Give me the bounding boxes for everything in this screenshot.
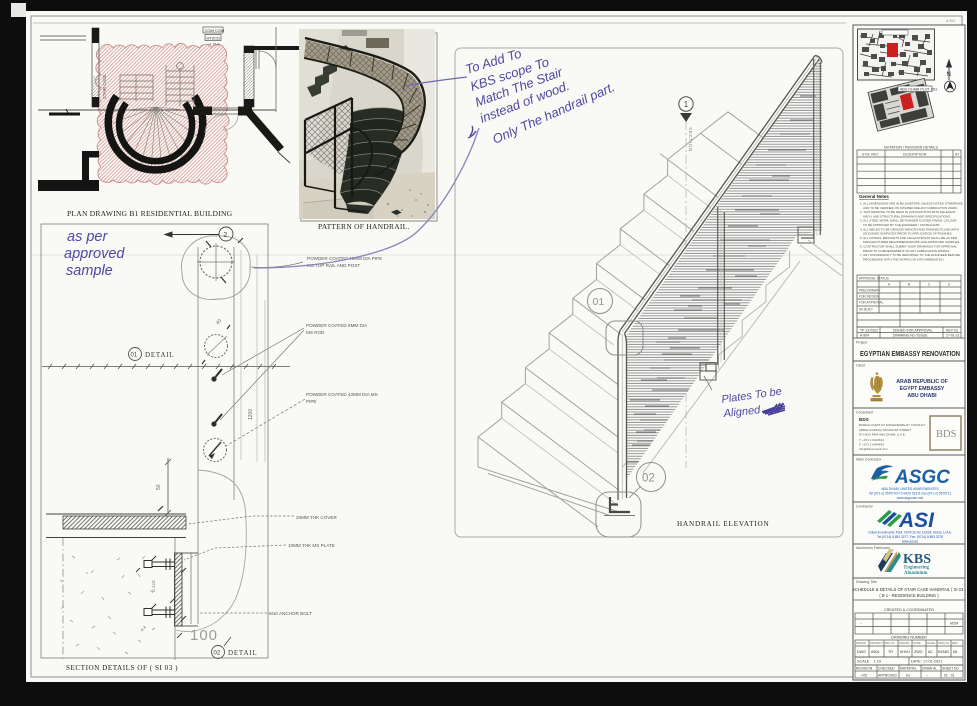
svg-text:Contractor: Contractor <box>856 505 874 509</box>
svg-text:REV: REV <box>952 641 958 645</box>
svg-text:--: -- <box>926 673 928 677</box>
svg-text:SHEET No: SHEET No <box>942 667 959 671</box>
svg-text:LEVEL: LEVEL <box>927 641 936 645</box>
svg-text:PROCEEDING WITH THE WORKS ON S: PROCEEDING WITH THE WORKS ON SITE IMMEDI… <box>863 257 945 261</box>
svg-text:HANDRAIL ELEVATION: HANDRAIL ELEVATION <box>677 520 769 528</box>
svg-text:BDS: BDS <box>859 417 869 422</box>
svg-text:DETAIL: DETAIL <box>145 351 175 359</box>
svg-text:ZWO: ZWO <box>914 650 923 654</box>
svg-text:A1: A1 <box>906 673 910 677</box>
svg-text:Client: Client <box>856 364 865 368</box>
svg-text:Main Contractor: Main Contractor <box>856 458 882 462</box>
svg-text:AC: AC <box>928 650 933 654</box>
svg-text:DETAIL: DETAIL <box>228 649 258 657</box>
svg-text:Engineering: Engineering <box>904 566 930 571</box>
svg-text:A-904: A-904 <box>946 19 955 23</box>
svg-text:A-904: A-904 <box>860 334 869 338</box>
svg-text:MATERIAL: MATERIAL <box>900 667 917 671</box>
svg-text:BY: BY <box>955 152 960 156</box>
svg-text:17-01-21: 17-01-21 <box>946 334 960 338</box>
svg-text:DWG: DWG <box>857 650 866 654</box>
svg-text:SCHEDULE & DETAILS OF STAIR CA: SCHEDULE & DETAILS OF STAIR CASE HANDRAI… <box>852 587 966 592</box>
svg-text:( B 1 - RESIDENCE BUILDING ): ( B 1 - RESIDENCE BUILDING ) <box>879 593 939 598</box>
svg-text:CREATED & COORDINATED: CREATED & COORDINATED <box>884 608 935 612</box>
svg-text:A904: A904 <box>871 650 879 654</box>
svg-text:ASGC: ASGC <box>894 467 950 488</box>
svg-text:CHECKED: CHECKED <box>878 667 895 671</box>
svg-text:STAIR CASE: STAIR CASE <box>102 74 107 99</box>
svg-text:100: 100 <box>190 627 218 644</box>
svg-text:--/05: --/05 <box>860 673 867 677</box>
svg-text:P.O BOX 4864 ABU DHABI, U.A.E.: P.O BOX 4864 ABU DHABI, U.A.E. <box>859 433 906 437</box>
svg-text:DISCIPL: DISCIPL <box>899 641 910 645</box>
svg-text:ABU DHABI, UNITED ARAB EMIRATE: ABU DHABI, UNITED ARAB EMIRATES <box>881 487 938 491</box>
svg-text:1200: 1200 <box>248 409 254 420</box>
svg-text:01: 01 <box>131 353 138 359</box>
svg-text:EGYPTIAN EMBASSY RENOVATION: EGYPTIAN EMBASSY RENOVATION <box>860 349 960 358</box>
svg-text:as per: as per <box>67 229 108 245</box>
svg-text:KHVU: KHVU <box>900 650 910 654</box>
svg-text:Consultant: Consultant <box>856 411 873 415</box>
svg-text:--: -- <box>860 621 862 625</box>
svg-text:1: 1 <box>684 100 689 109</box>
svg-text:SECTION DETAILS OF ( SI 03 ): SECTION DETAILS OF ( SI 03 ) <box>66 664 178 672</box>
svg-text:NOTATION / REVISION DETAILS: NOTATION / REVISION DETAILS <box>884 146 939 150</box>
svg-text:ASI: ASI <box>898 509 935 532</box>
svg-text:ABU DHABI PLOT C61: ABU DHABI PLOT C61 <box>900 87 937 91</box>
svg-text:SCALE 1:10: SCALE 1:10 <box>857 660 881 664</box>
svg-text:BDS: BDS <box>936 429 957 440</box>
svg-text:+4.15 m: +4.15 m <box>207 43 220 47</box>
svg-text:www.asi.ae: www.asi.ae <box>902 539 918 543</box>
svg-text:FOR REVIEW: FOR REVIEW <box>859 295 879 299</box>
svg-text:COM COM: COM COM <box>205 28 225 33</box>
svg-text:K934B: K934B <box>938 650 949 654</box>
svg-text:DATE: 17-01-2021: DATE: 17-01-2021 <box>911 660 942 664</box>
svg-text:20MM THK COVER: 20MM THK COVER <box>296 515 337 520</box>
svg-text:08: 08 <box>953 650 957 654</box>
svg-text:HTZCD: HTZCD <box>207 35 221 40</box>
svg-text:ORIGIN: ORIGIN <box>856 641 866 645</box>
svg-text:10MM THK MS PLATE: 10MM THK MS PLATE <box>288 543 335 548</box>
svg-text:F. +971 2 6444814: F. +971 2 6444814 <box>859 443 884 447</box>
svg-text:02: 02 <box>214 651 221 657</box>
svg-text:MS TOP RAIL AND POST: MS TOP RAIL AND POST <box>307 263 360 268</box>
svg-text:ARAB REPUBLIC OF: ARAB REPUBLIC OF <box>896 379 948 385</box>
svg-text:info@bdsconsult.com: info@bdsconsult.com <box>859 447 888 451</box>
svg-text:DESCRIPTION: DESCRIPTION <box>903 152 927 156</box>
svg-text:TP-13-0322: TP-13-0322 <box>860 328 878 332</box>
svg-text:MZM: MZM <box>950 622 958 626</box>
svg-text:02: 02 <box>642 473 655 485</box>
svg-text:DRAW AL: DRAW AL <box>922 667 937 671</box>
svg-text:ZONE: ZONE <box>913 641 921 645</box>
svg-text:2: 2 <box>223 232 227 239</box>
svg-text:ABDEL RAZZAQ SANHOURI STREET: ABDEL RAZZAQ SANHOURI STREET <box>859 428 911 432</box>
svg-text:DRAWING No / ISSUE: DRAWING No / ISSUE <box>893 334 928 338</box>
svg-text:POWDER COATED 42MM DIA MS: POWDER COATED 42MM DIA MS <box>306 392 378 397</box>
svg-text:APPROVAL STATUS: APPROVAL STATUS <box>859 277 889 281</box>
svg-text:REVISION: REVISION <box>856 667 873 671</box>
svg-text:APPROVED: APPROVED <box>878 673 897 677</box>
svg-text:T. +971 2 6444813: T. +971 2 6444813 <box>859 438 884 442</box>
svg-text:www.asgcuae.com: www.asgcuae.com <box>897 496 924 500</box>
svg-text:FOR APPROVAL: FOR APPROVAL <box>859 301 884 305</box>
svg-text:BLD No: BLD No <box>885 641 895 645</box>
svg-text:DRAWING NUMBER: DRAWING NUMBER <box>891 636 927 640</box>
svg-text:approved: approved <box>64 246 125 262</box>
svg-text:01 - 01: 01 - 01 <box>944 673 955 677</box>
svg-text:EGYPT EMBASSY: EGYPT EMBASSY <box>900 386 945 392</box>
svg-text:01: 01 <box>593 296 605 308</box>
svg-text:MS ROD: MS ROD <box>306 330 325 335</box>
svg-text:General Notes: General Notes <box>859 194 889 199</box>
svg-text:ABU DHABI: ABU DHABI <box>907 393 937 399</box>
svg-text:0.123: 0.123 <box>151 580 156 592</box>
svg-text:PIPE: PIPE <box>306 399 316 404</box>
svg-text:POWDER COATED 8MM DIA: POWDER COATED 8MM DIA <box>306 323 368 328</box>
svg-text:SECTION: SECTION <box>687 127 693 152</box>
svg-text:PLAN DRAWING B1 RESIDENTIAL BU: PLAN DRAWING B1 RESIDENTIAL BUILDING <box>67 209 233 218</box>
svg-text:PROJECT: PROJECT <box>870 641 883 645</box>
svg-text:Drawing Title: Drawing Title <box>856 580 877 584</box>
svg-text:B: B <box>908 283 910 287</box>
svg-text:M10 ANCHOR BOLT: M10 ANCHOR BOLT <box>269 611 312 616</box>
svg-text:Project: Project <box>856 341 867 345</box>
svg-text:Tel:(971-2) 5575700 P.O BOX 5: Tel:(971-2) 5575700 P.O BOX 51511 Fax:(9… <box>869 492 951 496</box>
svg-text:Aluminium Fabricator: Aluminium Fabricator <box>856 546 891 550</box>
svg-text:PATTERN OF HANDRAIL.: PATTERN OF HANDRAIL. <box>318 222 410 231</box>
svg-text:N: N <box>947 72 951 78</box>
svg-text:TR: TR <box>888 650 893 654</box>
svg-text:50: 50 <box>156 484 162 490</box>
svg-text:REV 03: REV 03 <box>946 328 958 332</box>
svg-text:BUREAU DART ET DINGENIERIE ET: BUREAU DART ET DINGENIERIE ET CONSULT. <box>859 423 926 427</box>
svg-text:sample: sample <box>66 263 113 279</box>
svg-text:PRELIMINARY: PRELIMINARY <box>859 289 881 293</box>
svg-text:DWG No: DWG No <box>938 641 950 645</box>
svg-text:Dubai Investments Park, OFFICE: Dubai Investments Park, OFFICE No 123/34… <box>868 531 951 535</box>
svg-text:SYM. REV: SYM. REV <box>862 152 879 156</box>
svg-text:AS BUILT: AS BUILT <box>859 308 873 312</box>
svg-text:ISSUED FOR APPROVAL: ISSUED FOR APPROVAL <box>893 328 933 332</box>
svg-text:Aluminium: Aluminium <box>904 571 927 576</box>
